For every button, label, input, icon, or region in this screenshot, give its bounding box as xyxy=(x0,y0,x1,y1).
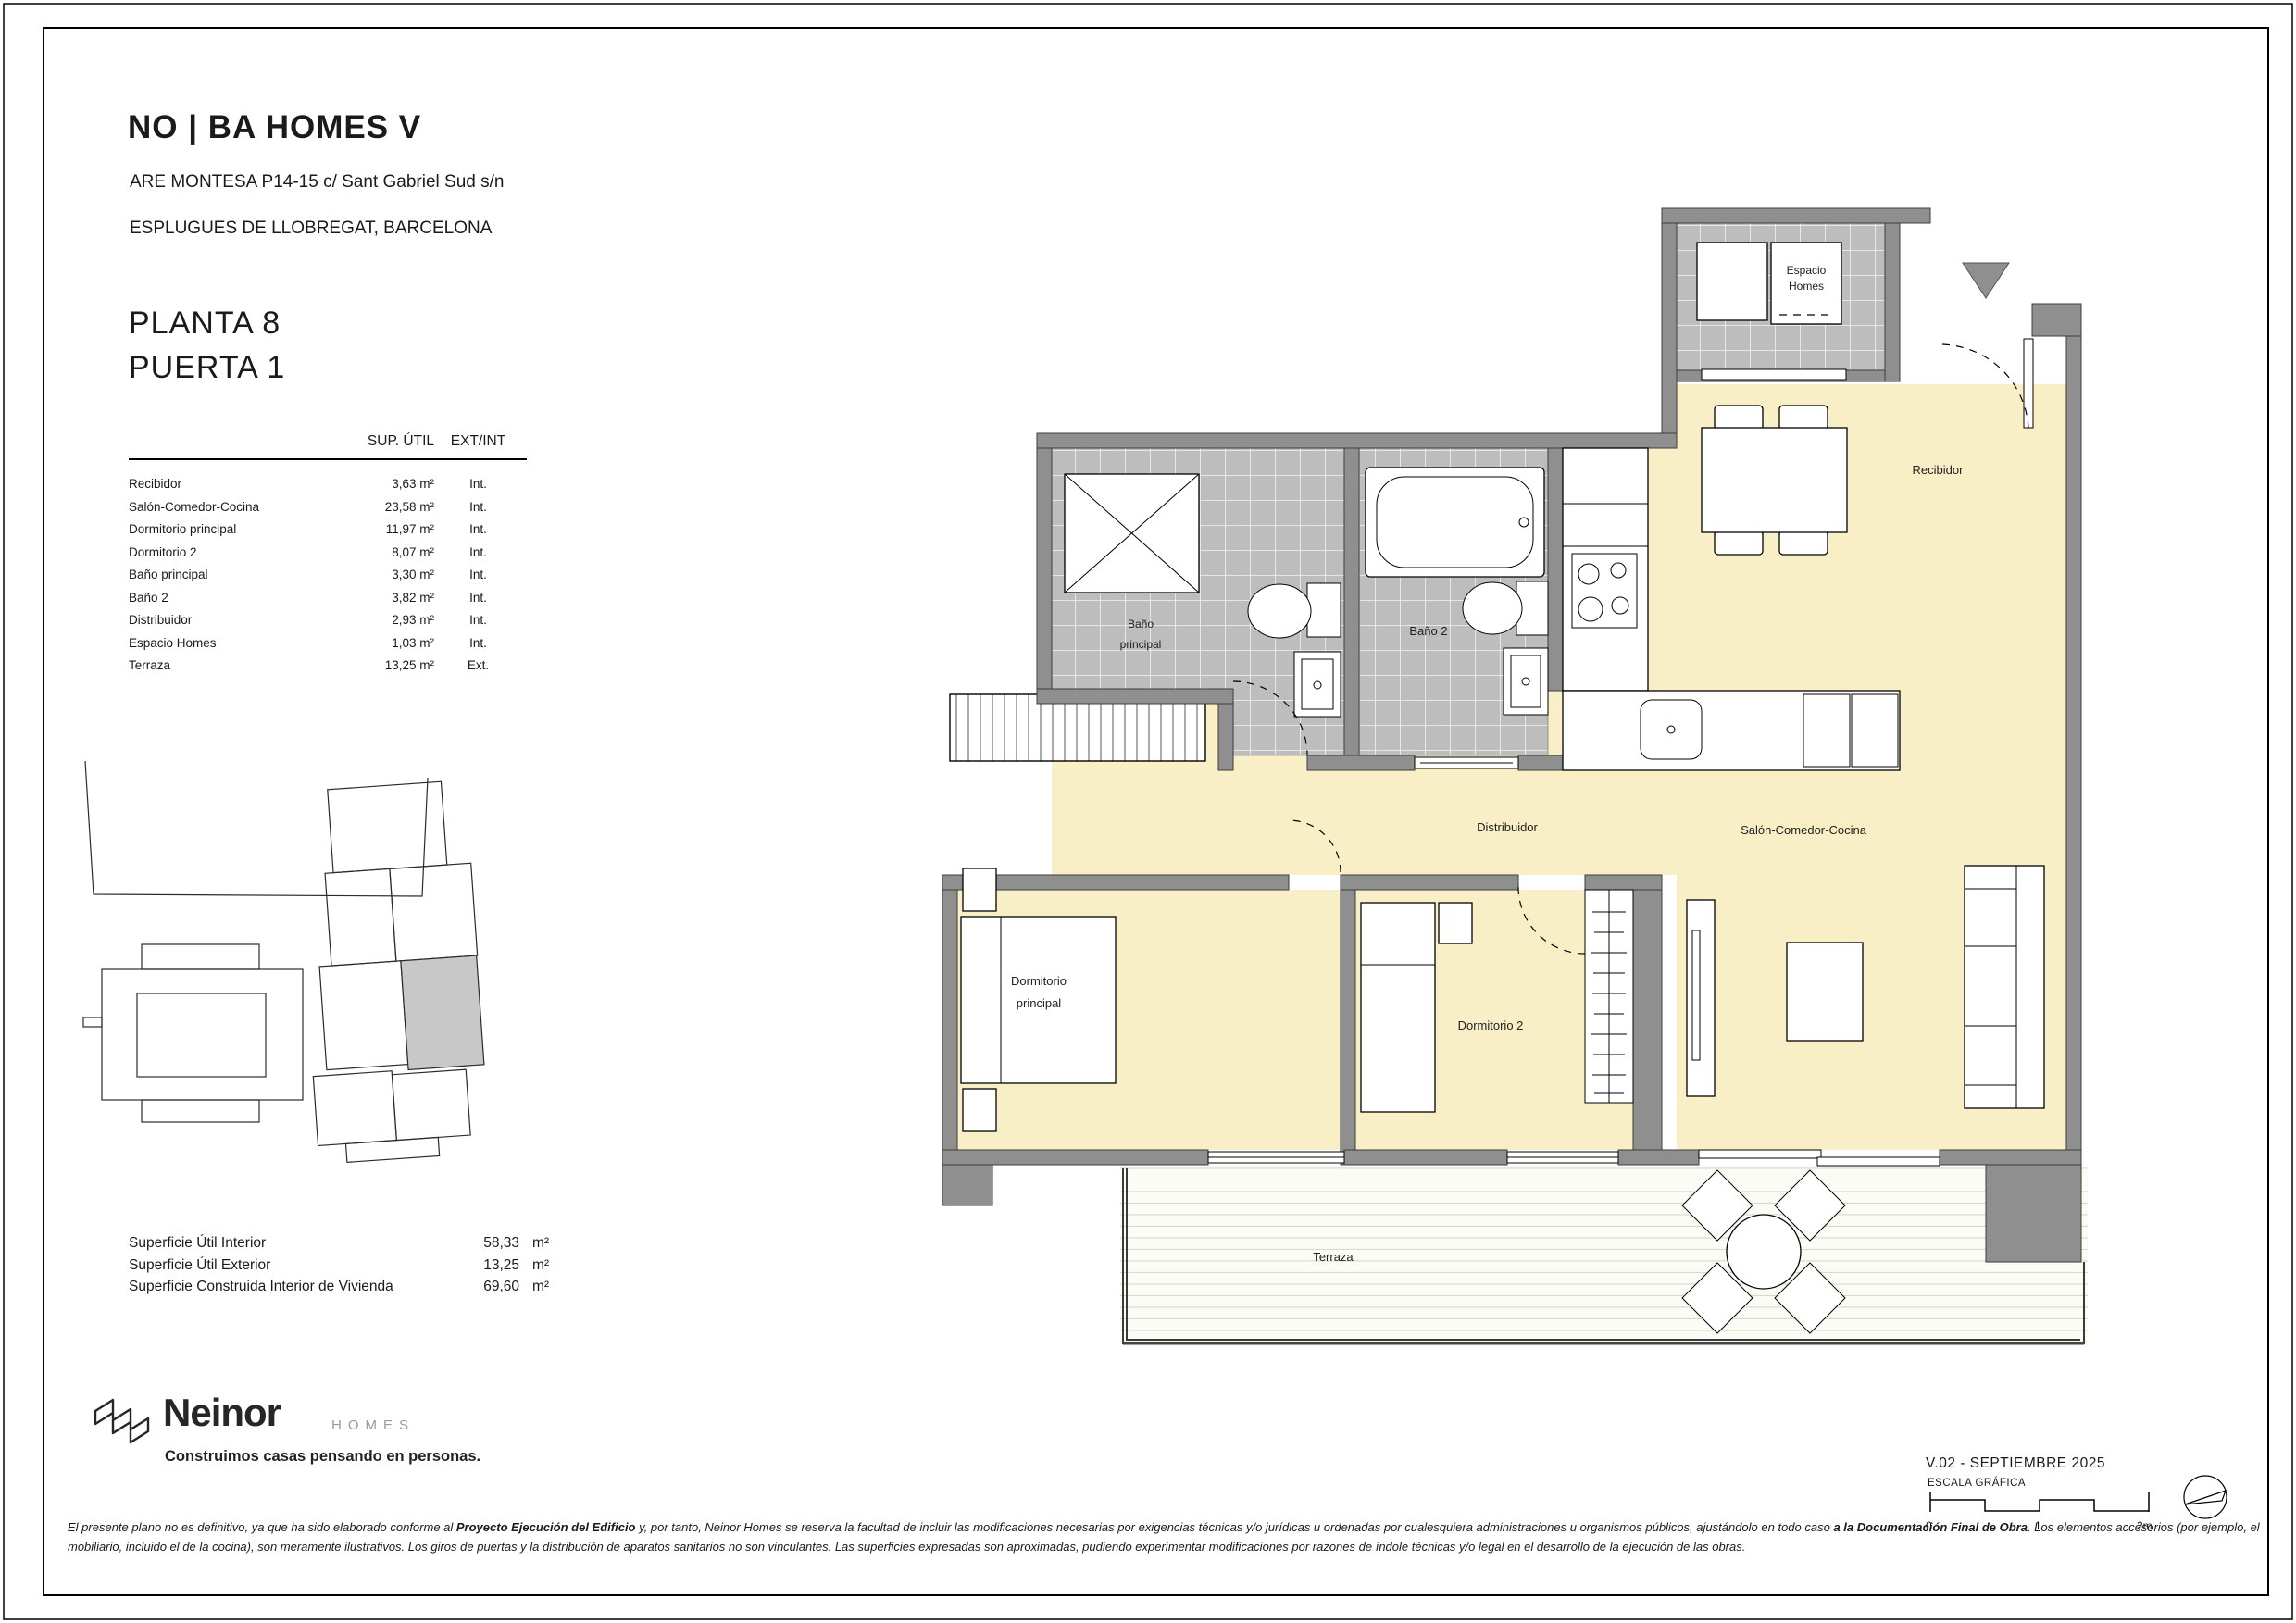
bathtub xyxy=(1366,468,1544,577)
nightstand xyxy=(963,1089,996,1131)
puerta-label: PUERTA 1 xyxy=(129,350,285,386)
areas-table-header: SUP. ÚTIL EXT/INT xyxy=(129,433,527,460)
single-bed xyxy=(1361,903,1435,1112)
kitchen-counter-tall xyxy=(1563,448,1648,691)
salon-label: Salón-Comedor-Cocina xyxy=(1741,823,1867,837)
bano-principal-label: Baño xyxy=(1128,618,1154,630)
tv-unit xyxy=(1687,900,1715,1096)
floor-plan: Espacio Homes Recibidor Baño principal B… xyxy=(942,208,2088,1347)
toilet-bowl xyxy=(1248,584,1311,638)
logo-tagline: Construimos casas pensando en personas. xyxy=(165,1448,480,1466)
table-row: Recibidor3,63 m²Int. xyxy=(129,473,527,496)
nightstand xyxy=(963,868,996,911)
facade-louvre xyxy=(950,694,1205,761)
table-row: Espacio Homes1,03 m²Int. xyxy=(129,632,527,655)
table-row: Dormitorio principal11,97 m²Int. xyxy=(129,518,527,542)
bano2-label: Baño 2 xyxy=(1409,624,1447,638)
terraza-label: Terraza xyxy=(1313,1250,1354,1264)
terrace-table xyxy=(1727,1215,1801,1289)
table-row: Terraza13,25 m²Ext. xyxy=(129,655,527,678)
sliding-door-leaf-1 xyxy=(1699,1150,1821,1158)
areas-table: SUP. ÚTIL EXT/INT Recibidor3,63 m²Int. S… xyxy=(129,433,527,678)
table-row: Dormitorio 28,07 m²Int. xyxy=(129,542,527,565)
dormitorio2-label: Dormitorio 2 xyxy=(1458,1018,1524,1032)
recibidor-label: Recibidor xyxy=(1913,463,1965,477)
distribuidor-label: Distribuidor xyxy=(1477,820,1538,834)
logo-homes: HOMES xyxy=(331,1417,415,1433)
compass-icon xyxy=(2184,1476,2227,1518)
coffee-table xyxy=(1787,943,1863,1041)
side-table xyxy=(1439,903,1472,943)
espacio-homes-label: Espacio xyxy=(1787,264,1827,277)
svg-text:principal: principal xyxy=(1017,996,1062,1010)
dining-set xyxy=(1702,406,1847,555)
plan-sheet: Espacio Homes Recibidor Baño principal B… xyxy=(0,0,2296,1623)
table-row: Baño 23,82 m²Int. xyxy=(129,587,527,610)
table-row: Salón-Comedor-Cocina23,58 m²Int. xyxy=(129,496,527,519)
table-row: Baño principal3,30 m²Int. xyxy=(129,564,527,587)
entrance-door-leaf xyxy=(2024,339,2033,428)
logo-brand: Neinor xyxy=(163,1391,281,1435)
escala-grafica-label: ESCALA GRÁFICA xyxy=(1928,1478,2026,1489)
svg-text:principal: principal xyxy=(1120,638,1162,651)
toilet-tank xyxy=(1307,583,1341,637)
key-plan xyxy=(83,761,492,1164)
windows xyxy=(1208,1150,1940,1166)
espacio-homes-closet-1 xyxy=(1697,243,1767,320)
dormitorio-principal-label: Dormitorio xyxy=(1011,974,1067,988)
col-ext-int: EXT/INT xyxy=(434,433,522,450)
project-address: ARE MONTESA P14-15 c/ Sant Gabriel Sud s… xyxy=(130,172,504,193)
col-sup-util: SUP. ÚTIL xyxy=(295,433,434,450)
plan-version: V.02 - SEPTIEMBRE 2025 xyxy=(1926,1455,2105,1472)
planta-label: PLANTA 8 xyxy=(129,306,281,342)
kitchen-counter-low xyxy=(1563,691,1900,770)
legal-disclaimer: El presente plano no es definitivo, ya q… xyxy=(68,1518,2260,1556)
table-row: Distribuidor2,93 m²Int. xyxy=(129,609,527,632)
key-plan-tower xyxy=(293,780,492,1164)
summary-row: Superficie Construida Interior de Vivien… xyxy=(129,1276,561,1298)
project-city: ESPLUGUES DE LLOBREGAT, BARCELONA xyxy=(130,218,492,239)
espacio-homes-sill xyxy=(1702,369,1846,380)
toilet-bowl xyxy=(1463,582,1522,634)
svg-text:Homes: Homes xyxy=(1789,280,1824,293)
key-plan-highlighted-unit xyxy=(401,955,484,1069)
terrace-deck xyxy=(1120,1165,2088,1347)
entrance-arrow-icon xyxy=(1963,263,2009,298)
surface-summary: Superficie Útil Interior58,33m² Superfic… xyxy=(129,1232,561,1298)
project-title: NO | BA HOMES V xyxy=(128,109,421,146)
sofa xyxy=(1965,866,2044,1108)
summary-row: Superficie Útil Interior58,33m² xyxy=(129,1232,561,1255)
neinor-logo-mark-icon xyxy=(95,1400,148,1442)
sliding-door-leaf-2 xyxy=(1817,1157,1940,1166)
summary-row: Superficie Útil Exterior13,25m² xyxy=(129,1255,561,1277)
